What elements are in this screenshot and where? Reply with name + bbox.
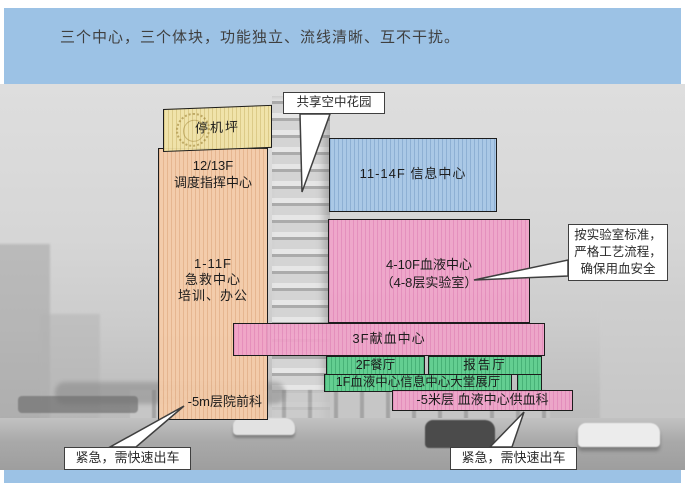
lab-standard-line1: 按实验室标准， [569, 227, 667, 244]
helipad-icon [176, 112, 210, 147]
urgent-right-label: 紧急，需快速出车 [461, 450, 565, 465]
background-building [600, 299, 685, 424]
hospital-tower [272, 96, 330, 426]
basement-dept-label: -5m层院前科 [188, 391, 262, 410]
info-center-label: 11-14F 信息中心 [360, 166, 467, 181]
restaurant-label: 2F餐厅 [356, 358, 396, 372]
car [233, 418, 295, 435]
block-emergency-tower: 12/13F 调度指挥中心 1-11F 急救中心 培训、办公 -5m层院前科 [158, 148, 268, 420]
blood-supply-label: -5米层 血液中心供血科 [416, 392, 548, 407]
slide: 三个中心，三个体块，功能独立、流线清晰、互不干扰。 12/13F 调度指挥中心 … [0, 0, 685, 485]
lobby-label: 1F血液中心信息中心大堂展厅 [336, 375, 501, 389]
car [425, 420, 495, 448]
urgent-dispatch-callout-left: 紧急，需快速出车 [64, 447, 191, 470]
block-restaurant: 2F餐厅 [326, 356, 425, 375]
page-title: 三个中心，三个体块，功能独立、流线清晰、互不干扰。 [60, 26, 460, 47]
car [578, 423, 660, 447]
lab-standard-line3: 确保用血安全 [569, 261, 667, 278]
urgent-dispatch-callout-right: 紧急，需快速出车 [450, 447, 577, 470]
blood-center-label: 4-10F血液中心 （4-8层实验室） [329, 256, 529, 292]
lecture-hall-label: 报告厅 [463, 358, 507, 372]
urgent-left-label: 紧急，需快速出车 [75, 450, 179, 465]
donation-label: 3F献血中心 [352, 331, 425, 346]
block-donation-center: 3F献血中心 [233, 323, 545, 356]
lab-standard-callout: 按实验室标准， 严格工艺流程， 确保用血安全 [568, 224, 668, 281]
dispatch-center-label: 12/13F 调度指挥中心 [159, 157, 267, 191]
sky-garden-callout: 共享空中花园 [283, 92, 385, 114]
block-blood-supply: -5米层 血液中心供血科 [392, 390, 573, 411]
block-helipad: 停机坪 [163, 105, 272, 152]
block-blood-center: 4-10F血液中心 （4-8层实验室） [328, 219, 530, 323]
sky-garden-label: 共享空中花园 [296, 95, 371, 109]
footer-band [4, 470, 681, 483]
emergency-center-label: 1-11F 急救中心 培训、办公 [159, 256, 267, 304]
block-lecture-hall: 报告厅 [428, 356, 542, 375]
lab-standard-line2: 严格工艺流程， [569, 244, 667, 261]
car [18, 396, 138, 413]
block-info-center: 11-14F 信息中心 [329, 138, 497, 212]
